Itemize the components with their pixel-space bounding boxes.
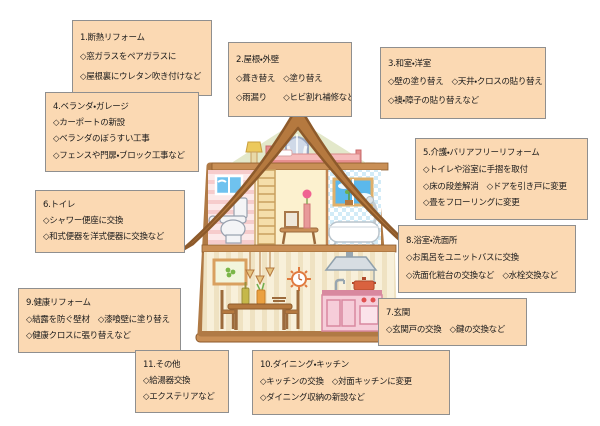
callout-line: ◇ベランダのぼうすい工事 [53, 135, 191, 144]
callout-line: ◇健康クロスに張り替えなど [26, 332, 173, 341]
callout-rooms: 3.和室・洋室 ◇壁の塗り替え ◇天井・クロスの貼り替え ◇襖・障子の貼り替えな… [380, 47, 546, 119]
callout-line: ◇床の段差解消 ◇ドアを引き戸に変更 [423, 183, 580, 192]
callout-line: ◇和式便器を洋式便器に交換など [43, 233, 177, 242]
callout-entrance: 7.玄関 ◇玄関戸の交換 ◇鍵の交換など [378, 298, 527, 346]
callout-title: 7.玄関 [386, 309, 519, 318]
callout-title: 6.トイレ [43, 201, 177, 210]
callout-line: ◇給湯器交換 [143, 377, 221, 386]
dining-table [228, 304, 292, 309]
callout-barrier-free: 5.介護・バリアフリーリフォーム ◇トイレや浴室に手摺を取付 ◇床の段差解消 ◇… [415, 138, 588, 220]
callout-title: 4.ベランダ・ガレージ [53, 103, 191, 112]
floor-divider [202, 245, 396, 252]
callout-line: ◇葺き替え ◇塗り替え [236, 75, 344, 84]
callout-line: ◇玄関戸の交換 ◇鍵の交換など [386, 326, 519, 335]
callout-title: 5.介護・バリアフリーリフォーム [423, 149, 580, 158]
callout-line: ◇お風呂をユニットバスに交換 [406, 254, 568, 263]
callout-toilet: 6.トイレ ◇シャワー便座に交換 ◇和式便器を洋式便器に交換など [35, 190, 185, 253]
callout-veranda-garage: 4.ベランダ・ガレージ ◇カーポートの新設 ◇ベランダのぼうすい工事 ◇フェンス… [45, 92, 199, 172]
renovation-diagram: 1.断熱リフォーム ◇窓ガラスをペアガラスに ◇屋根裏にウレタン吹き付けなど 2… [0, 0, 600, 426]
callout-line: ◇ダイニング収納の新設など [260, 394, 442, 403]
callout-title: 2.屋根・外壁 [236, 56, 344, 65]
callout-line: ◇シャワー便座に交換 [43, 217, 177, 226]
callout-health: 9.健康リフォーム ◇結露を防ぐ壁材 ◇漆喰壁に塗り替え ◇健康クロスに張り替え… [18, 288, 181, 353]
callout-line: ◇雨漏り ◇ヒビ割れ補修など [236, 94, 344, 103]
callout-title: 8.浴室・洗面所 [406, 237, 568, 246]
callout-line: ◇畳をフローリングに変更 [423, 199, 580, 208]
callout-line: ◇洗面化粧台の交換など ◇水栓交換など [406, 272, 568, 281]
callout-line: ◇トイレや浴室に手摺を取付 [423, 166, 580, 175]
callout-title: 11.その他 [143, 361, 221, 370]
callout-line: ◇エクステリアなど [143, 393, 221, 402]
first-floor [202, 252, 397, 331]
callout-line: ◇壁の塗り替え ◇天井・クロスの貼り替え [388, 78, 538, 87]
second-floor [208, 170, 381, 245]
attic-floor [212, 163, 388, 170]
callout-title: 9.健康リフォーム [26, 299, 173, 308]
picture-frame [214, 260, 246, 284]
flower-vase [303, 190, 312, 229]
callout-line: ◇カーポートの新設 [53, 119, 191, 128]
callout-insulation: 1.断熱リフォーム ◇窓ガラスをペアガラスに ◇屋根裏にウレタン吹き付けなど [72, 20, 212, 96]
callout-title: 10.ダイニング・キッチン [260, 361, 442, 370]
callout-line: ◇キッチンの交換 ◇対面キッチンに変更 [260, 378, 442, 387]
callout-bathroom: 8.浴室・洗面所 ◇お風呂をユニットバスに交換 ◇洗面化粧台の交換など ◇水栓交… [398, 225, 576, 293]
callout-title: 1.断熱リフォーム [80, 34, 204, 43]
callout-roof-exterior: 2.屋根・外壁 ◇葺き替え ◇塗り替え ◇雨漏り ◇ヒビ割れ補修など [228, 42, 352, 117]
callout-line: ◇結露を防ぐ壁材 ◇漆喰壁に塗り替え [26, 316, 173, 325]
callout-line: ◇襖・障子の貼り替えなど [388, 97, 538, 106]
callout-title: 3.和室・洋室 [388, 60, 538, 69]
ladder [258, 170, 275, 244]
callout-other: 11.その他 ◇給湯器交換 ◇エクステリアなど [135, 350, 229, 413]
callout-dining-kitchen: 10.ダイニング・キッチン ◇キッチンの交換 ◇対面キッチンに変更 ◇ダイニング… [252, 350, 450, 415]
callout-line: ◇窓ガラスをペアガラスに [80, 53, 204, 62]
callout-line: ◇屋根裏にウレタン吹き付けなど [80, 73, 204, 82]
photo-frame [285, 212, 298, 227]
callout-line: ◇フェンスや門扉・ブロック工事など [53, 152, 191, 161]
